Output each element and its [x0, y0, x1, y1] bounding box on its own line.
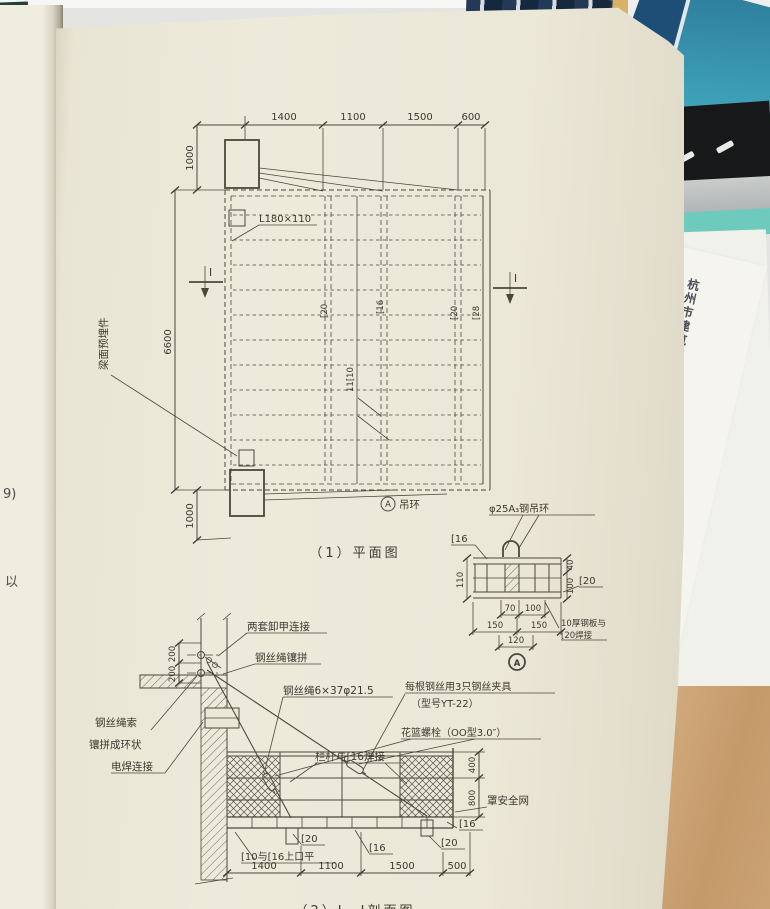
detail-plate-note-2: [20焊接 [561, 630, 593, 641]
photo-scene: 杭州市建筑施工现场安全文明施工标准化图册 与建筑施工安全检查标准（JGJ59-2… [0, 0, 770, 909]
weld-label: 电焊连接 [111, 760, 153, 773]
detail-dim-120: 120 [508, 636, 524, 646]
detail-plate-note-1: 10厚钢板与 [561, 618, 606, 629]
c16-end-label: [16 [459, 819, 476, 830]
plan-dim-top-4: 600 [461, 112, 480, 123]
plan-dim-top-1: 1400 [271, 112, 296, 123]
section-dim-bottom-2: 1100 [318, 861, 343, 872]
detail-dim-100: 100 [525, 604, 541, 614]
plan-column-bottom [230, 470, 264, 516]
plan-angle-label: L180×110 [259, 214, 311, 225]
section-dim-200a: 200 [168, 646, 178, 662]
embedded-plate-bottom [239, 450, 254, 466]
rope-ring-label-2: 镶拼成环状 [89, 738, 142, 751]
detail-dim-150b: 150 [531, 621, 547, 631]
clamps-label-2: （型号YT-22） [411, 697, 479, 710]
rope-ring-label-1: 钢丝绳索 [95, 716, 137, 729]
engineering-drawing: 1400 1100 1500 600 1000 6600 1000 [55, 70, 665, 909]
plan-dim-top-3: 1500 [407, 112, 432, 123]
detail-c20-label: [20 [579, 576, 596, 587]
ring-label: 吊环 [399, 499, 420, 511]
c20-end-label: [20 [441, 838, 458, 849]
section-caption: （2）Ⅰ—Ⅰ剖面图 [295, 904, 416, 909]
c16-mid-label: [16 [369, 843, 386, 854]
plan-joist-label: 11[10 [346, 367, 356, 392]
detail-ref-circle: A [514, 659, 521, 669]
plan-view: 1400 1100 1500 600 1000 6600 1000 [97, 112, 527, 561]
section-dim-400: 400 [468, 757, 478, 773]
detail-dim-70: 70 [505, 604, 516, 614]
white-mark [716, 140, 735, 154]
left-page-text-fragment: 9) [3, 487, 16, 502]
section-dim-200b: 200 [168, 666, 178, 682]
post-base-mid [286, 828, 298, 844]
clamps-label-1: 每根钢丝用3只钢丝夹具 [405, 680, 511, 693]
ring-ref-circle: A [385, 500, 391, 510]
safety-net-label: 罩安全网 [487, 794, 529, 807]
plan-dim-top-2: 1100 [340, 112, 365, 123]
left-page-text-fragment: 以 [5, 571, 18, 590]
c20-mid-label: [20 [301, 834, 318, 845]
safety-net-right [400, 756, 453, 817]
detail-dim-110: 110 [456, 572, 466, 588]
rope-splice-label: 钢丝绳镶拼 [255, 651, 308, 664]
detail-dim-150a: 150 [487, 621, 503, 631]
section-mark-left: Ⅰ [209, 267, 212, 279]
detail-ring-label: φ25A₃钢吊环 [489, 502, 549, 515]
section-dim-bottom-3: 1500 [389, 861, 414, 872]
plan-caption: （1）平面图 [309, 546, 400, 561]
shackle-label: 两套卸甲连接 [247, 620, 310, 633]
section-mark-right: Ⅰ [514, 273, 517, 285]
turnbuckle-label: 花篮螺栓（OO型3.0″） [401, 726, 506, 739]
plan-dim-1000-top: 1000 [185, 145, 196, 170]
plan-dim-1000-bottom: 1000 [185, 503, 196, 528]
detail-c16-label: [16 [451, 534, 468, 545]
embedded-parts-label: 梁面预埋件 [97, 318, 110, 371]
section-dim-bottom-4: 500 [447, 861, 466, 872]
detail-dim-100-right: 100 [566, 578, 576, 594]
detail-a: φ25A₃钢吊环 [16 110 40 100 [451, 502, 607, 670]
plan-channel-label-1: [20 [320, 304, 330, 318]
rope-spec-label: 钢丝绳6×37φ21.5 [283, 684, 374, 697]
plan-column-top [225, 140, 259, 188]
plan-channel-label-4: [28 [472, 306, 482, 320]
safety-net-left [227, 756, 280, 817]
section-view: 200 200 两套卸甲连接 钢丝绳镶拼 钢丝绳6×37φ21.5 [89, 613, 555, 909]
section-dim-800: 800 [468, 790, 478, 806]
detail-dim-40: 40 [566, 560, 576, 571]
deck-joists [252, 817, 427, 828]
plan-channel-label-3: [20 [450, 306, 460, 320]
left-page-edge: 9) 以 [0, 5, 63, 909]
plan-dim-6600: 6600 [163, 329, 174, 354]
plan-channel-label-2: [16 [376, 300, 386, 314]
section-dim-bottom-1: 1400 [251, 861, 276, 872]
